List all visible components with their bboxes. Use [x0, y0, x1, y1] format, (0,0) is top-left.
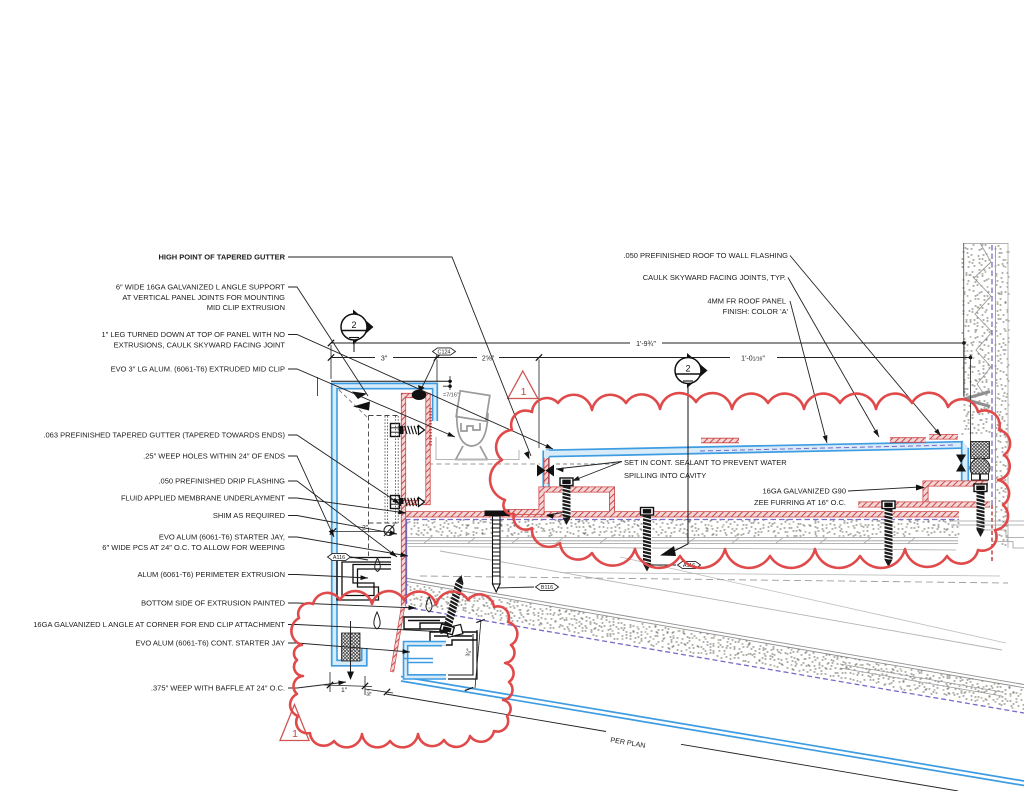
svg-text:EVO ALUM (6061-T6) STARTER JAY: EVO ALUM (6061-T6) STARTER JAY,	[159, 533, 285, 542]
svg-text:16GA GALVANIZED G90: 16GA GALVANIZED G90	[762, 487, 846, 496]
svg-text:=7/16″: =7/16″	[443, 393, 459, 399]
svg-text:2: 2	[685, 364, 690, 374]
svg-text:4MM FR ROOF PANEL: 4MM FR ROOF PANEL	[707, 297, 786, 306]
svg-text:.375″ WEEP WITH BAFFLE AT 24″: .375″ WEEP WITH BAFFLE AT 24″ O.C.	[151, 684, 285, 693]
svg-text:.25″ WEEP HOLES WITHIN 24″ OF: .25″ WEEP HOLES WITHIN 24″ OF ENDS	[143, 452, 285, 461]
svg-text:6″ WIDE 16GA GALVANIZED L ANGL: 6″ WIDE 16GA GALVANIZED L ANGLE SUPPORT	[116, 283, 286, 292]
svg-text:AT VERTICAL PANEL JOINTS FOR M: AT VERTICAL PANEL JOINTS FOR MOUNTING	[122, 293, 285, 302]
svg-text:FINISH: COLOR 'A': FINISH: COLOR 'A'	[723, 307, 789, 316]
svg-text:CAULK SKYWARD FACING JOINTS, T: CAULK SKYWARD FACING JOINTS, TYP.	[643, 273, 786, 282]
svg-text:FLUID APPLIED MEMBRANE UNDERLA: FLUID APPLIED MEMBRANE UNDERLAYMENT	[121, 494, 285, 503]
svg-text:1′-01/16″: 1′-01/16″	[741, 356, 765, 363]
svg-text:16GA GALVANIZED L ANGLE AT COR: 16GA GALVANIZED L ANGLE AT CORNER FOR EN…	[33, 620, 285, 629]
svg-text:MID CLIP EXTRUSION: MID CLIP EXTRUSION	[207, 303, 285, 312]
svg-text:1: 1	[521, 386, 527, 398]
svg-text:1′-9¾″: 1′-9¾″	[636, 341, 656, 348]
svg-text:SET IN CONT. SEALANT TO PREVEN: SET IN CONT. SEALANT TO PREVENT WATER	[624, 458, 787, 467]
svg-text:HIGH POINT OF TAPERED GUTTER: HIGH POINT OF TAPERED GUTTER	[158, 253, 285, 262]
svg-text:C124: C124	[438, 350, 451, 356]
svg-text:6″ WIDE PCS AT 24″ O.C. TO ALL: 6″ WIDE PCS AT 24″ O.C. TO ALLOW FOR WEE…	[102, 543, 285, 552]
svg-text:.050 PREFINISHED ROOF TO WALL: .050 PREFINISHED ROOF TO WALL FLASHING	[623, 251, 788, 260]
svg-text:A116: A116	[333, 555, 345, 561]
svg-text:EVO 3″ LG ALUM. (6061-T6) EXTR: EVO 3″ LG ALUM. (6061-T6) EXTRUDED MID C…	[111, 365, 285, 374]
svg-text:1: 1	[292, 728, 298, 740]
svg-text:.050 PREFINISHED DRIP FLASHING: .050 PREFINISHED DRIP FLASHING	[158, 477, 285, 486]
svg-text:EXTRUSIONS, CAULK SKYWARD FACI: EXTRUSIONS, CAULK SKYWARD FACING JOINT	[114, 340, 286, 349]
svg-text:2: 2	[351, 320, 356, 330]
svg-text:.063 PREFINISHED TAPERED GUTTE: .063 PREFINISHED TAPERED GUTTER (TAPERED…	[43, 431, 285, 440]
svg-text:ZEE FURRING AT 16″ O.C.: ZEE FURRING AT 16″ O.C.	[754, 498, 846, 507]
svg-text:EVO ALUM (6061-T6) CONT. START: EVO ALUM (6061-T6) CONT. STARTER JAY	[135, 639, 285, 648]
svg-text:SHIM AS REQUIRED: SHIM AS REQUIRED	[213, 511, 286, 520]
svg-text:3″: 3″	[381, 356, 388, 363]
svg-text:ALUM (6061-T6) PERIMETER EXTRU: ALUM (6061-T6) PERIMETER EXTRUSION	[137, 570, 285, 579]
svg-text:1″ LEG TURNED DOWN AT TOP OF P: 1″ LEG TURNED DOWN AT TOP OF PANEL WITH …	[101, 330, 285, 339]
svg-text:B116: B116	[541, 585, 553, 591]
svg-text:BOTTOM SIDE OF EXTRUSION PAINT: BOTTOM SIDE OF EXTRUSION PAINTED	[141, 599, 285, 608]
svg-text:1″: 1″	[341, 687, 348, 694]
svg-text:SPILLING INTO CAVITY: SPILLING INTO CAVITY	[624, 471, 706, 480]
